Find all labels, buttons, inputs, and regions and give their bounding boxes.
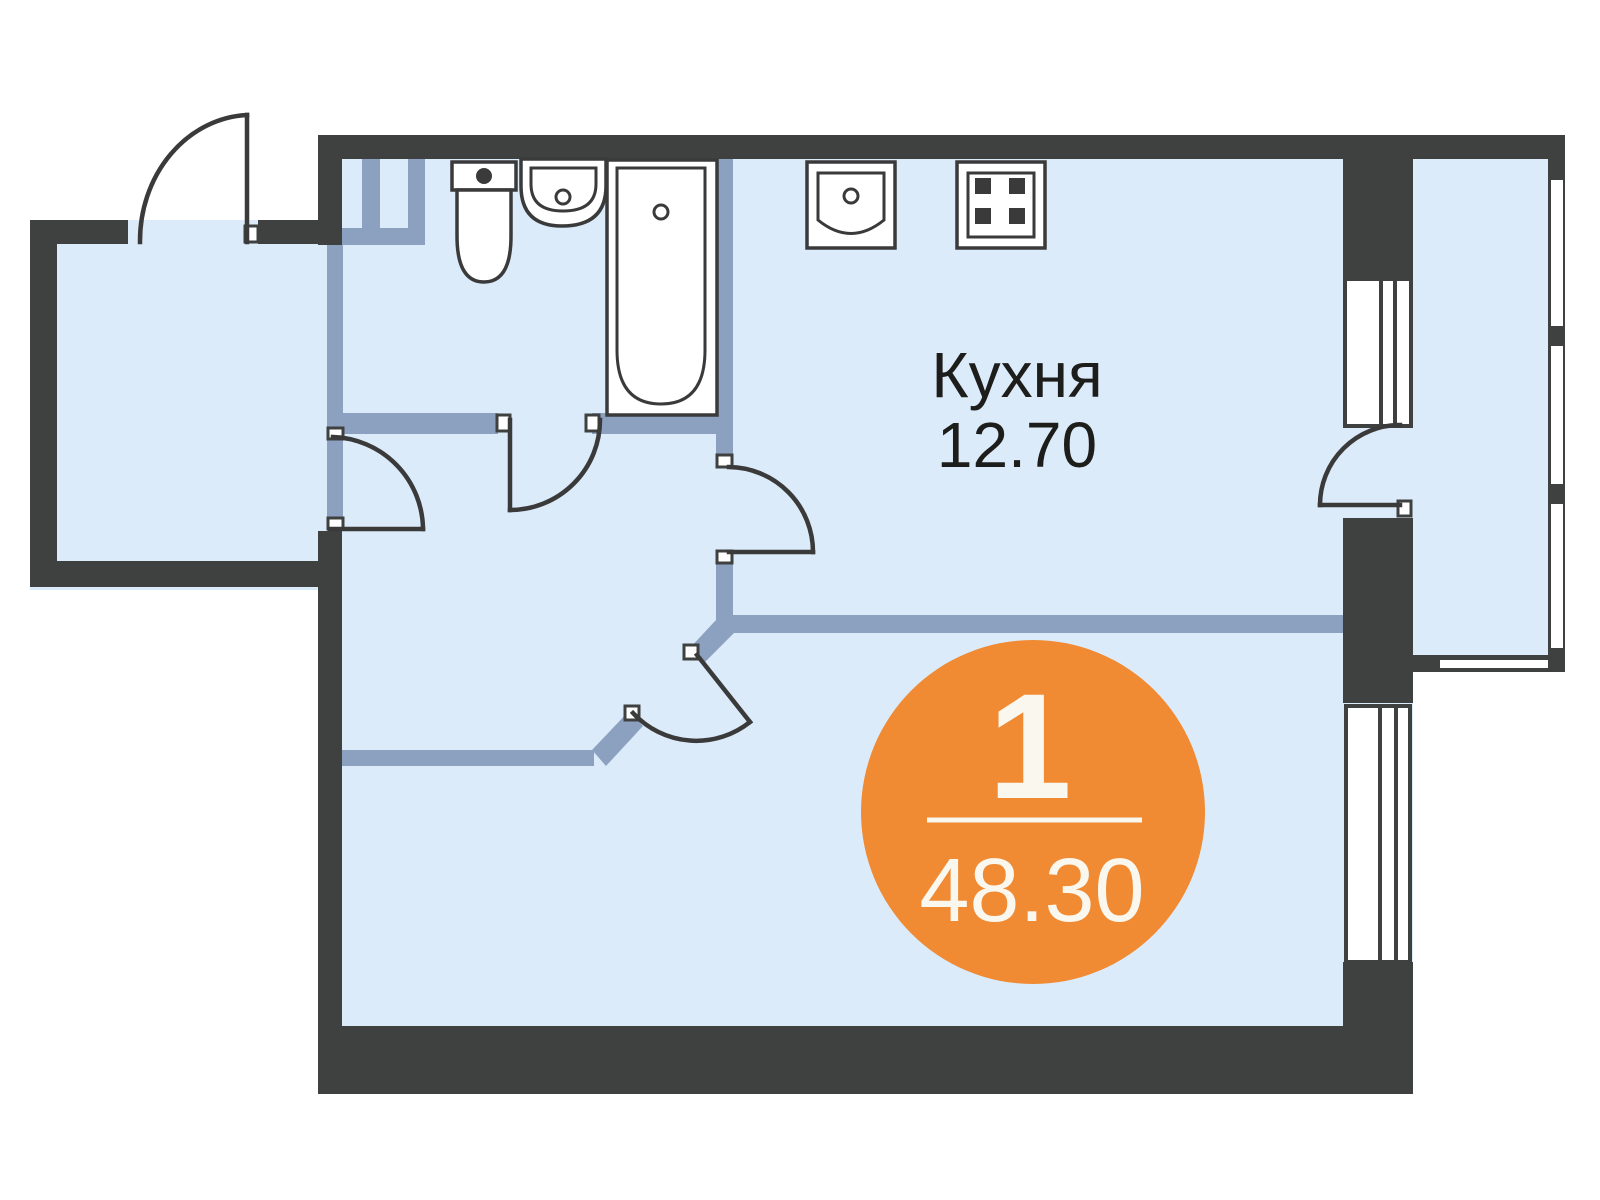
- bathtub-icon: [607, 160, 717, 415]
- room-floors: [30, 135, 1565, 1094]
- badge-total-area: 48.30: [919, 841, 1144, 941]
- left-wall-upper: [318, 135, 342, 245]
- hall-living-wall: [342, 750, 594, 766]
- shaft-wall-left: [362, 159, 380, 234]
- entrance-bottom-wall: [30, 561, 326, 587]
- left-wall-lower: [318, 531, 342, 1094]
- bathroom-sink-icon: [521, 159, 606, 226]
- bathroom-bottom-wall-a: [327, 413, 498, 434]
- toilet-icon: [452, 162, 516, 282]
- shaft-wall-right: [408, 159, 425, 234]
- floor-plan-canvas: Кухня 12.70 1 48.30: [0, 0, 1600, 1200]
- bottom-wall: [318, 1026, 1413, 1094]
- floor-plan: Кухня 12.70 1 48.30: [0, 0, 1600, 1200]
- shaft-wall-bottom: [338, 228, 425, 245]
- living-room-window-icon: [1346, 706, 1410, 962]
- right-pillar-mid: [1343, 518, 1413, 703]
- stove-icon: [957, 162, 1045, 248]
- jamb-bath-right: [586, 415, 599, 431]
- entrance-left-wall: [30, 220, 57, 587]
- right-pillar-bottom: [1343, 962, 1413, 1094]
- entrance-room-right-wall: [327, 244, 343, 524]
- kitchen-label: Кухня: [931, 339, 1102, 411]
- kitchen-balcony-window-icon: [1345, 279, 1411, 426]
- area-badge: 1 48.30: [861, 640, 1205, 984]
- kitchen-sink-icon: [807, 162, 895, 248]
- badge-room-count: 1: [988, 662, 1071, 830]
- kitchen-area-value: 12.70: [937, 409, 1097, 481]
- entrance-top-wall-right: [258, 220, 318, 244]
- kitchen-room-label: Кухня 12.70: [931, 339, 1102, 481]
- kitchen-living-divider: [728, 615, 1345, 633]
- balcony-floor: [1413, 140, 1565, 672]
- entrance-hall-floor: [30, 220, 343, 590]
- right-pillar-top: [1343, 159, 1413, 280]
- top-wall: [318, 135, 1565, 159]
